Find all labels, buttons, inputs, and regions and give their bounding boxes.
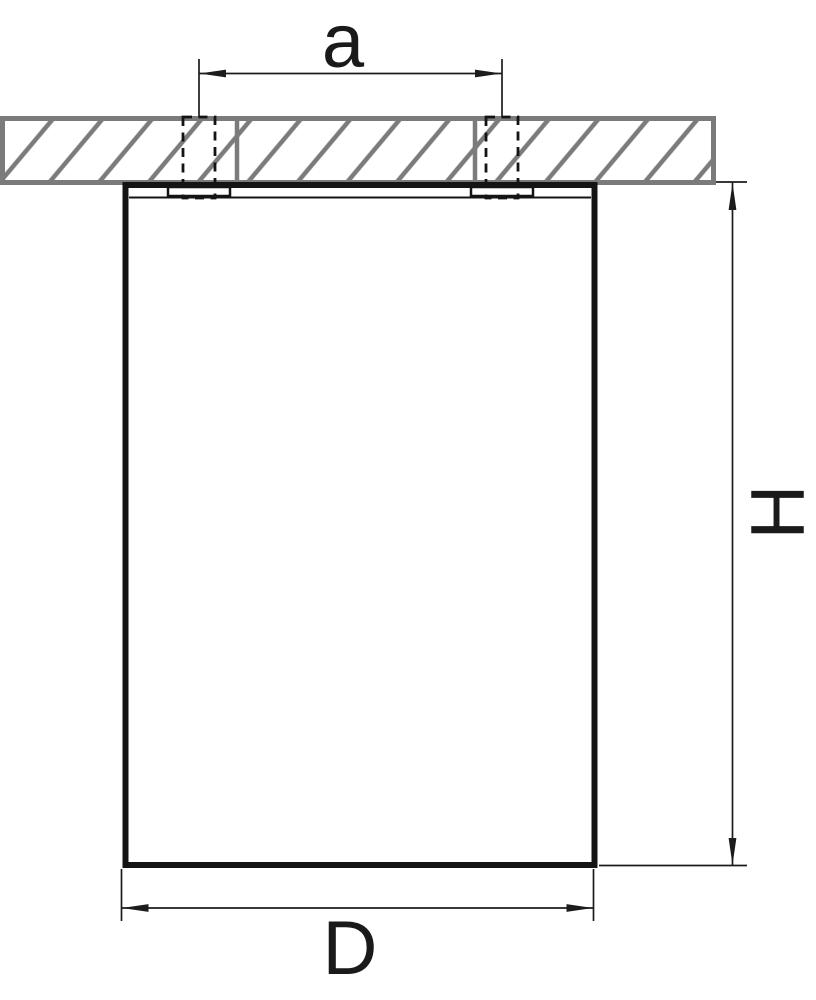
fixture-dimension-drawing: a H D bbox=[0, 0, 816, 1000]
dim-d-arrow-left bbox=[122, 904, 149, 912]
dim-d-label: D bbox=[323, 911, 378, 987]
dim-a-arrow-left bbox=[200, 70, 227, 78]
dim-d-arrow-right bbox=[567, 904, 594, 912]
dim-h-arrow-top bbox=[729, 183, 737, 210]
dim-h-label: H bbox=[741, 485, 816, 540]
drawing-linework bbox=[0, 0, 816, 1000]
dim-a-arrow-right bbox=[475, 70, 502, 78]
dimension-h bbox=[599, 182, 747, 866]
dim-h-arrow-bottom bbox=[729, 838, 737, 865]
fixture-body bbox=[126, 185, 595, 865]
dim-a-label: a bbox=[322, 4, 364, 80]
ceiling-slab bbox=[3, 119, 714, 183]
